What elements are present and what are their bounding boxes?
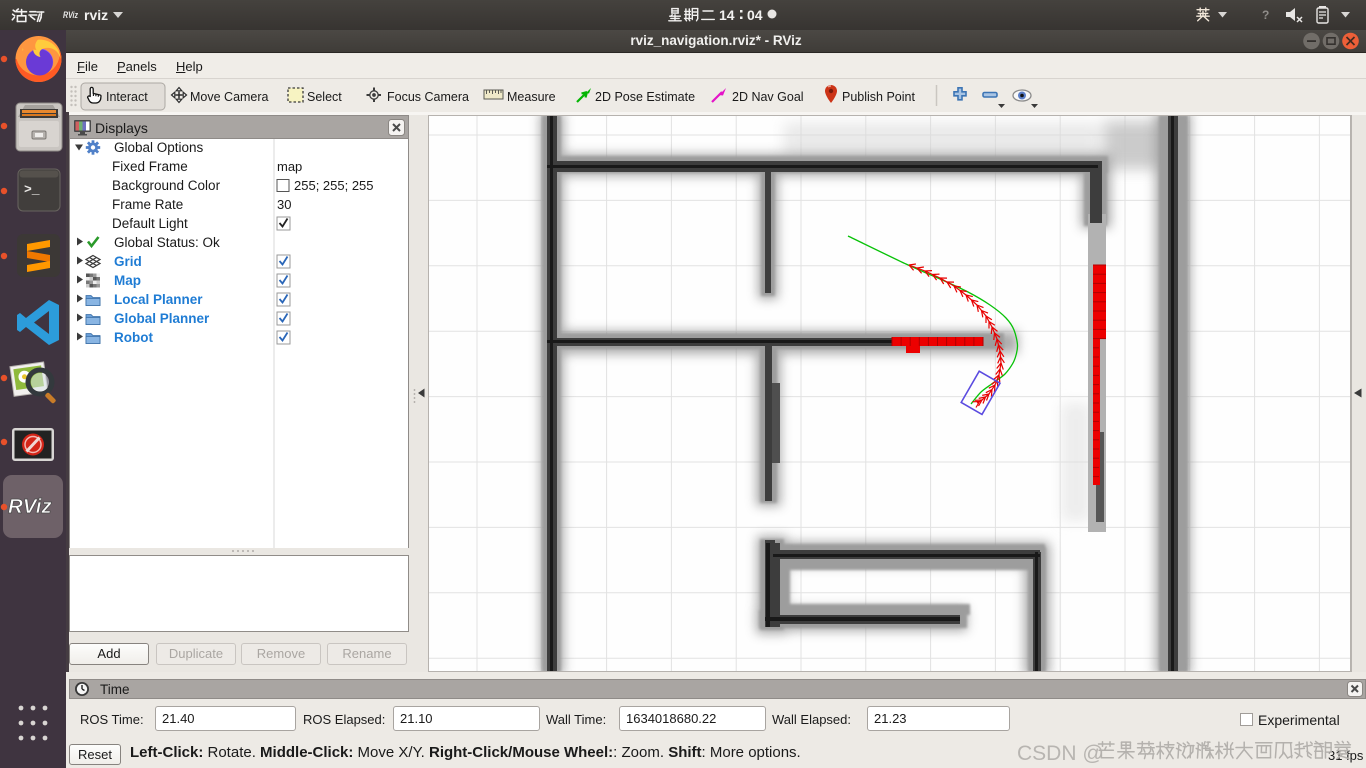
svg-text:255; 255; 255: 255; 255; 255 [294, 178, 374, 193]
svg-text:>_: >_ [24, 182, 40, 197]
svg-text:Default Light: Default Light [112, 216, 188, 231]
svg-text:14: 14 [719, 7, 735, 23]
svg-text:Robot: Robot [114, 330, 153, 345]
svg-text:Fixed Frame: Fixed Frame [112, 159, 188, 174]
svg-text:?: ? [1262, 8, 1269, 22]
svg-text:Measure: Measure [507, 90, 556, 104]
svg-text:Background Color: Background Color [112, 178, 221, 193]
svg-text:Focus Camera: Focus Camera [387, 90, 469, 104]
svg-text:2D Nav Goal: 2D Nav Goal [732, 90, 804, 104]
svg-text:Frame Rate: Frame Rate [112, 197, 183, 212]
svg-text:Map: Map [114, 273, 141, 288]
svg-text:Grid: Grid [114, 254, 142, 269]
svg-text:Select: Select [307, 90, 342, 104]
svg-text:map: map [277, 159, 302, 174]
svg-text:Move Camera: Move Camera [190, 90, 269, 104]
svg-text:Global Status: Ok: Global Status: Ok [114, 235, 220, 250]
svg-text:Global Planner: Global Planner [114, 311, 210, 326]
svg-text:2D Pose Estimate: 2D Pose Estimate [595, 90, 695, 104]
svg-text:Interact: Interact [106, 90, 148, 104]
svg-text:RViz: RViz [63, 10, 78, 20]
svg-text:rviz: rviz [84, 7, 108, 23]
svg-text:Local Planner: Local Planner [114, 292, 203, 307]
svg-text:04: 04 [747, 7, 763, 23]
svg-text:Publish Point: Publish Point [842, 90, 915, 104]
svg-text:RViz: RViz [8, 495, 52, 518]
svg-text:Global Options: Global Options [114, 140, 204, 155]
svg-text:30: 30 [277, 197, 291, 212]
svg-text:CSDN @: CSDN @ [1017, 742, 1104, 765]
